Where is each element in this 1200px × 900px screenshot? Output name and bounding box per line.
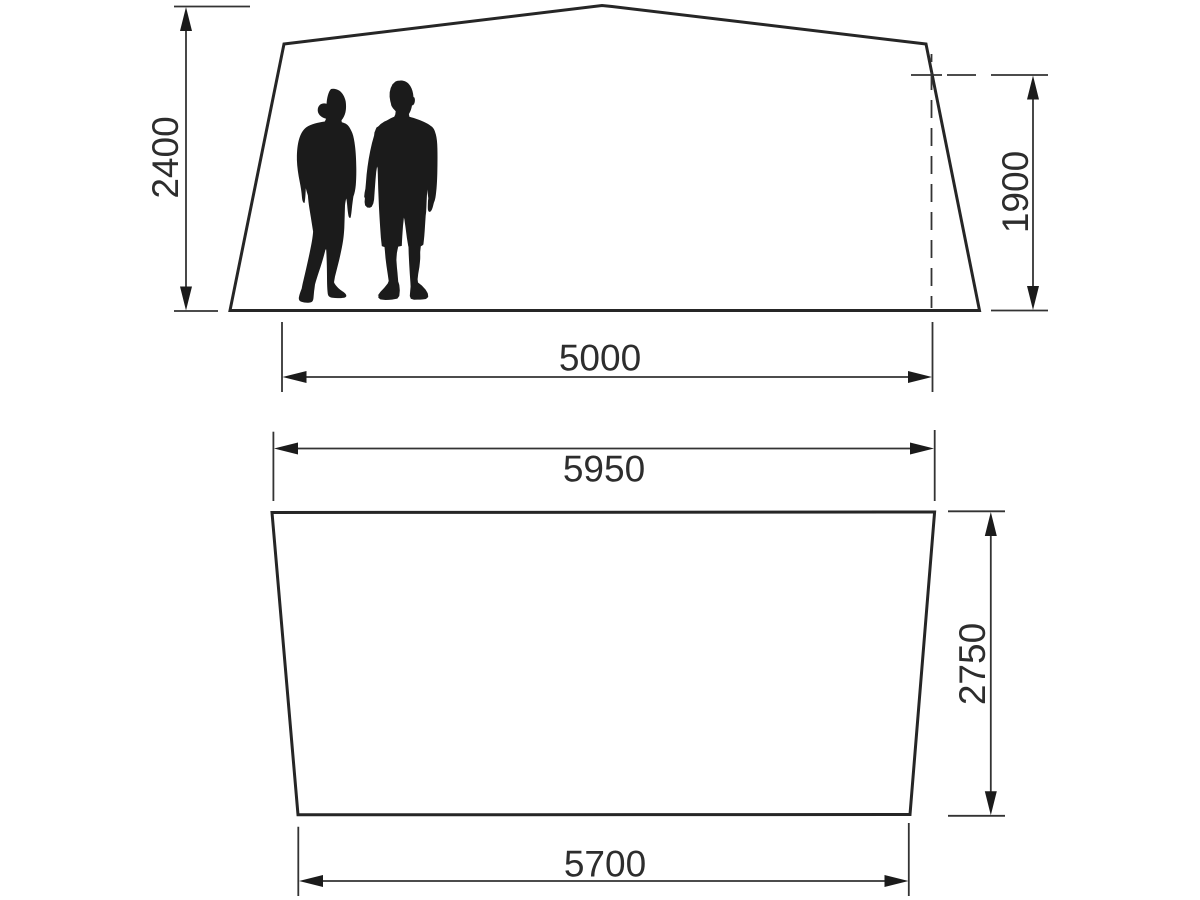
- svg-text:5950: 5950: [563, 449, 645, 490]
- svg-text:5000: 5000: [559, 338, 641, 379]
- svg-text:1900: 1900: [995, 151, 1036, 233]
- svg-text:2400: 2400: [145, 116, 186, 198]
- svg-text:5700: 5700: [564, 844, 646, 885]
- svg-text:2750: 2750: [952, 623, 993, 705]
